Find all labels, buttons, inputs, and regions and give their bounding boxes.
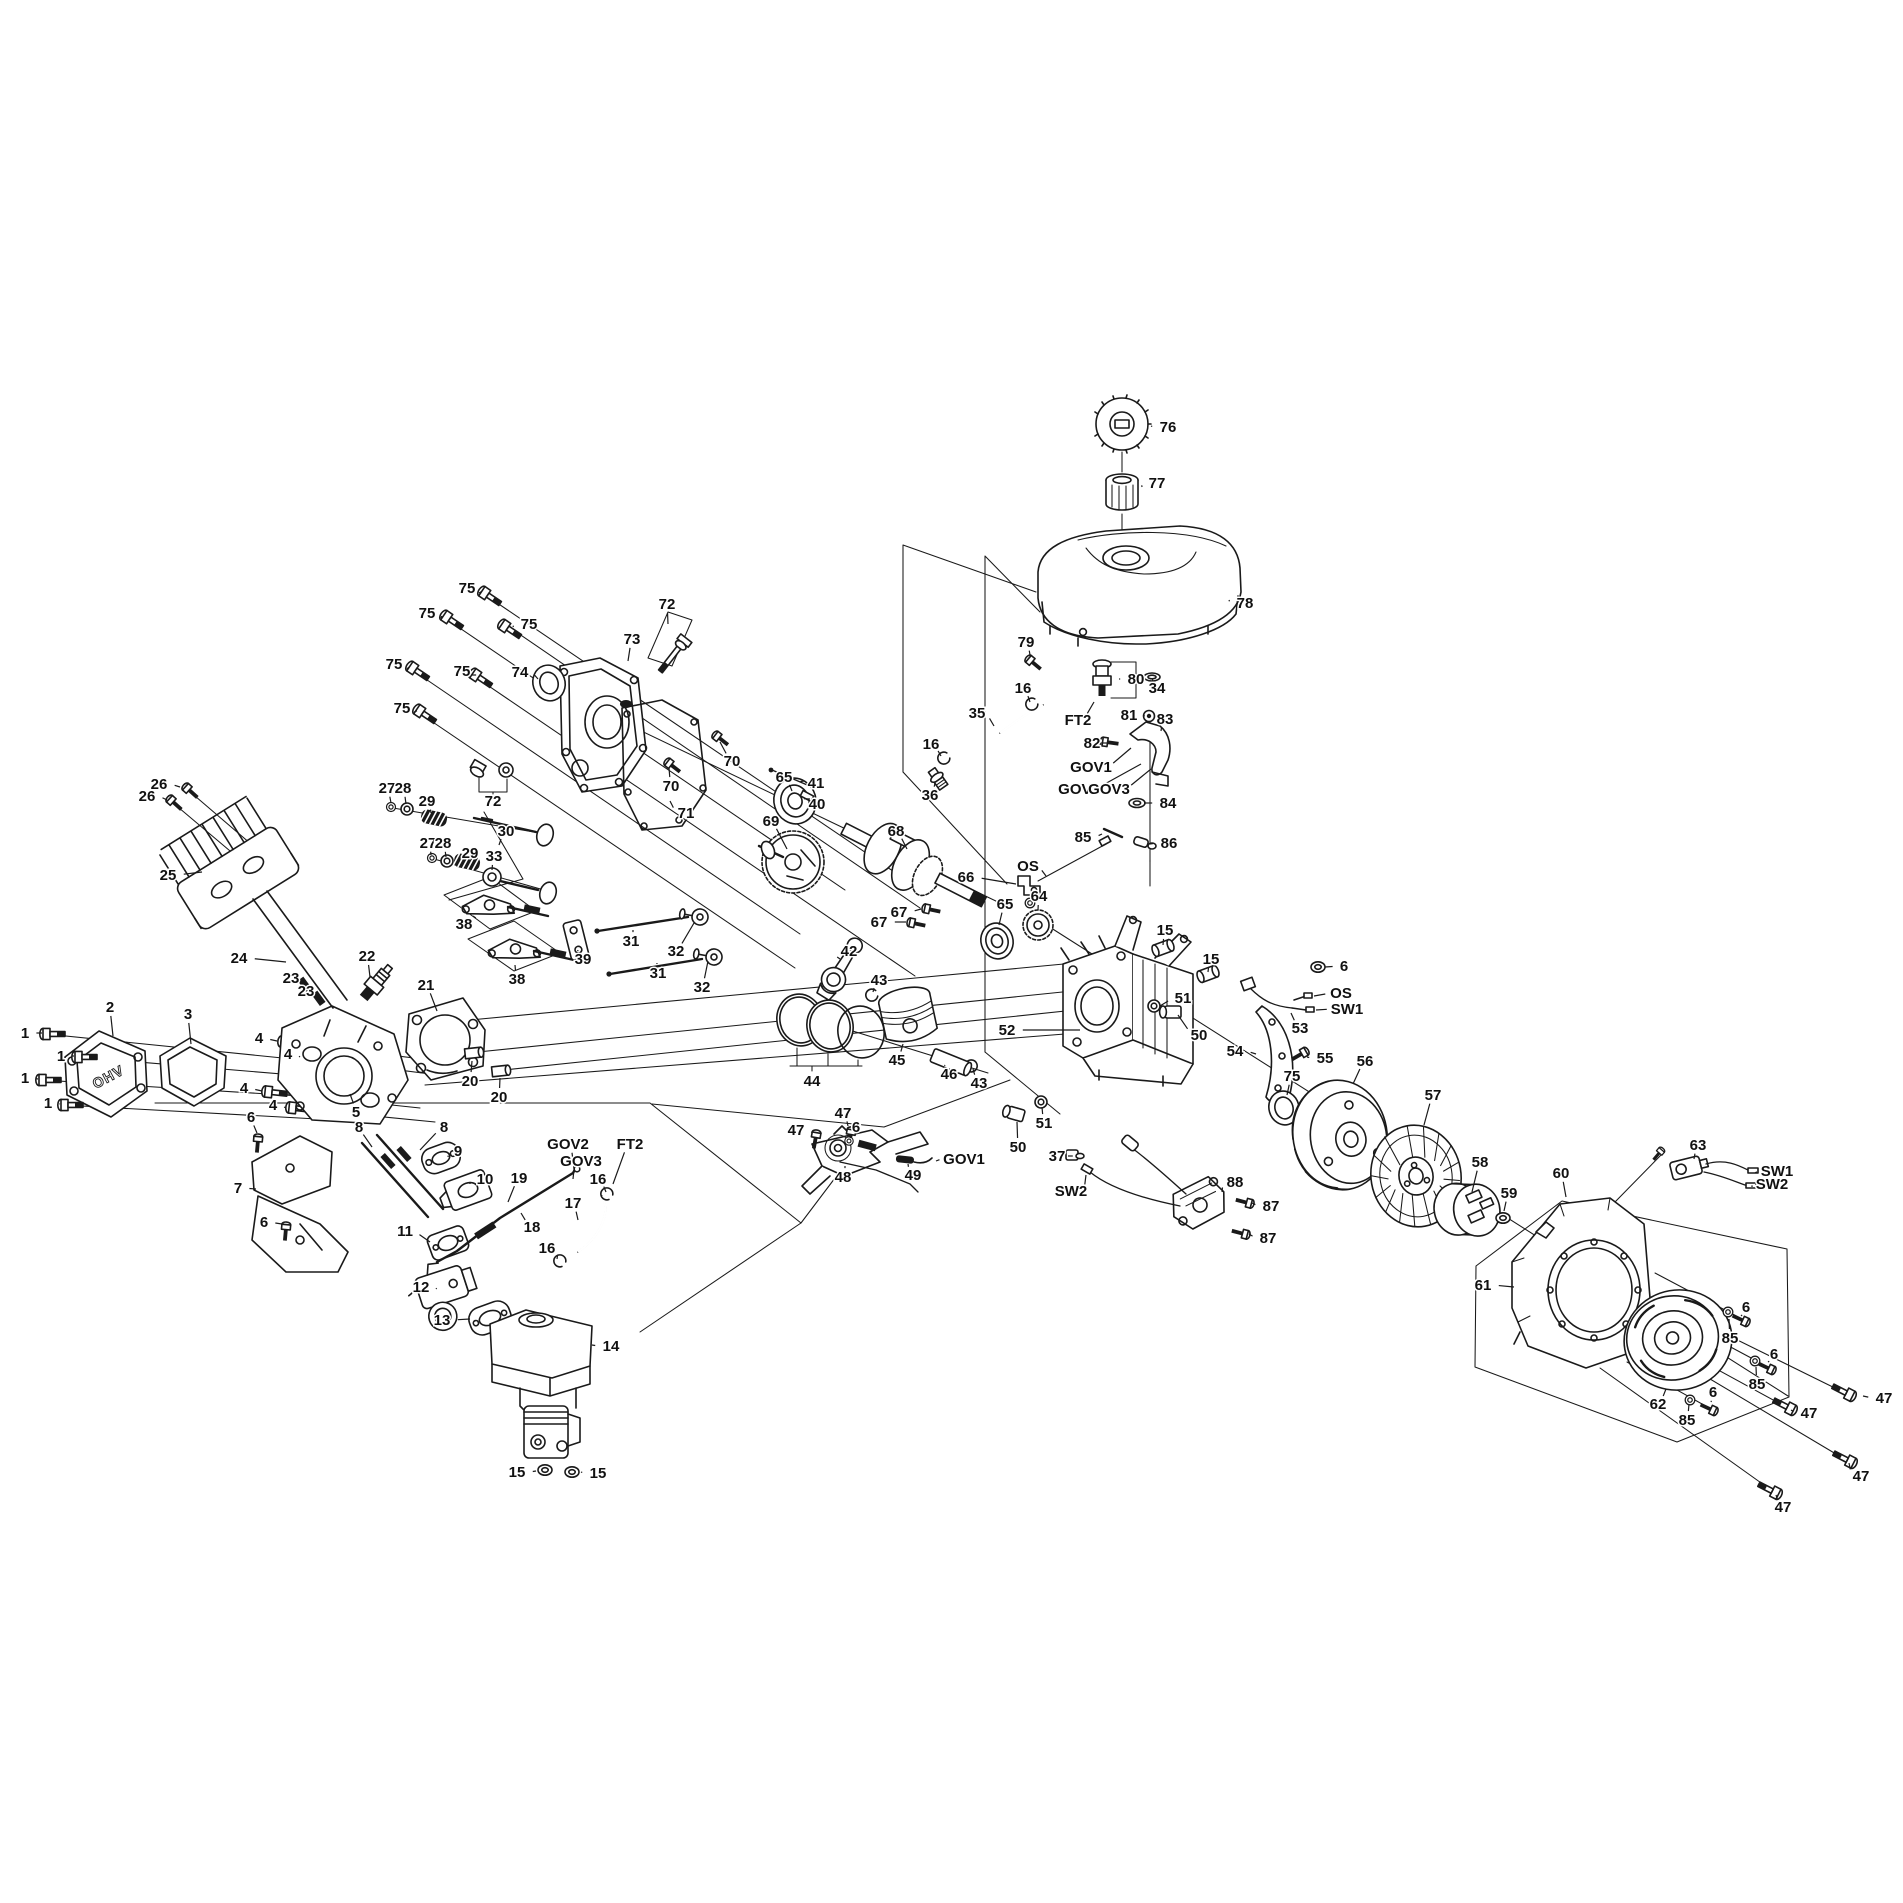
leader-line-43 <box>973 1069 975 1075</box>
leader-line-32 <box>704 961 708 978</box>
callout-27-44: 27 <box>379 780 396 797</box>
callout-85-126: 85 <box>1075 829 1092 846</box>
piston <box>877 983 939 1046</box>
callout-29-48: 29 <box>419 793 436 810</box>
callout-32-53: 32 <box>668 943 685 960</box>
oil-dipstick-72 <box>655 634 692 676</box>
callout-55-86: 55 <box>1317 1050 1334 1067</box>
callout-28-46: 28 <box>395 780 412 797</box>
callout-69-102: 69 <box>763 813 780 830</box>
callout-71-105: 71 <box>678 805 695 822</box>
callout-50-80: 50 <box>1010 1139 1027 1156</box>
engine-exploded-view: OHV <box>0 0 1903 1903</box>
leader-line-6 <box>1325 966 1333 967</box>
callout-6-132: 6 <box>1770 1346 1778 1363</box>
callout-38-61: 38 <box>509 971 526 988</box>
callout-33-55: 33 <box>486 848 503 865</box>
callout-47-74: 47 <box>1801 1405 1818 1422</box>
callout-49-78: 49 <box>905 1167 922 1184</box>
callout-80-121: 80 <box>1128 671 1145 688</box>
callout-75-115: 75 <box>394 700 411 717</box>
callout-48-77: 48 <box>835 1169 852 1186</box>
callout-9-17: 9 <box>454 1143 462 1160</box>
callout-13-21: 13 <box>434 1312 451 1329</box>
tube-clip-16 <box>1024 696 1040 712</box>
callout-75-110: 75 <box>459 580 476 597</box>
callout-47-71: 47 <box>835 1105 852 1122</box>
cylinder-block <box>1061 916 1193 1086</box>
camshaft-69 <box>759 831 824 893</box>
leader-line-4 <box>255 1089 262 1091</box>
callout-73-108: 73 <box>624 631 641 648</box>
switch-screw <box>1651 1146 1666 1162</box>
callout-6-12: 6 <box>260 1214 268 1231</box>
leader-line-15 <box>1208 968 1209 972</box>
callout-6-13: 6 <box>852 1119 860 1136</box>
governor-spring-49 <box>896 1155 932 1164</box>
callout-83-124: 83 <box>1157 711 1174 728</box>
callout-75-112: 75 <box>521 616 538 633</box>
callout-24-40: 24 <box>231 950 248 967</box>
callout-77-118: 77 <box>1149 475 1166 492</box>
callout-82-123: 82 <box>1084 735 1101 752</box>
air-cleaner-nut-15 <box>538 1465 552 1475</box>
oil-plug-72 <box>469 760 513 779</box>
callout-76-117: 76 <box>1160 419 1177 436</box>
callout-20-35: 20 <box>491 1089 508 1106</box>
plug-boot <box>1121 1134 1140 1152</box>
callout-15-23: 15 <box>509 1464 526 1481</box>
leader-line-24 <box>255 959 286 962</box>
callout-58-89: 58 <box>1472 1154 1489 1171</box>
callout-87-136: 87 <box>1260 1230 1277 1247</box>
callout-2-4: 2 <box>106 999 114 1016</box>
callout-52-83: 52 <box>999 1022 1016 1039</box>
callout-75-116: 75 <box>1284 1068 1301 1085</box>
air-cleaner-assembly <box>490 1310 592 1458</box>
callout-36-58: 36 <box>922 787 939 804</box>
callout-1-0: 1 <box>21 1025 29 1042</box>
leader-line-15 <box>533 1471 536 1472</box>
callout-6-11: 6 <box>247 1109 255 1126</box>
leader-line-42 <box>837 957 840 959</box>
kill-wire-sw2 <box>1081 1164 1180 1206</box>
callout-28-47: 28 <box>435 835 452 852</box>
leader-line-45 <box>901 1044 903 1052</box>
leader-line-66 <box>982 878 1016 884</box>
callout-68-101: 68 <box>888 823 905 840</box>
leader-line-79 <box>1029 651 1030 655</box>
callout-59-90: 59 <box>1501 1185 1518 1202</box>
callout-1-2: 1 <box>21 1070 29 1087</box>
shield-bolt-6 <box>253 1134 263 1153</box>
ignition-coil <box>1167 1174 1230 1232</box>
head-gasket <box>406 998 485 1080</box>
callout-OS-146: OS <box>1017 858 1039 875</box>
leader-line-13 <box>458 1319 470 1320</box>
fuel-tank <box>1038 526 1241 646</box>
callout-79-120: 79 <box>1018 634 1035 651</box>
callout-23-39: 23 <box>298 983 315 1000</box>
callout-6-133: 6 <box>1709 1384 1717 1401</box>
oil-filler-plug-50 <box>1160 1006 1181 1018</box>
callout-87-135: 87 <box>1263 1198 1280 1215</box>
callout-39-62: 39 <box>575 951 592 968</box>
callout-4-6: 4 <box>255 1030 264 1047</box>
callout-65-97: 65 <box>997 896 1014 913</box>
callout-75-113: 75 <box>386 656 403 673</box>
callout-29-49: 29 <box>462 845 479 862</box>
callout-67-100: 67 <box>871 914 888 931</box>
callout-15-26: 15 <box>1203 951 1220 968</box>
callout-22-37: 22 <box>359 948 376 965</box>
shroud-nut-6 <box>1311 962 1325 972</box>
leader-line-14 <box>592 1345 595 1346</box>
leader-line-OS <box>1314 994 1325 996</box>
callout-10-18: 10 <box>477 1171 494 1188</box>
callout-85-130: 85 <box>1679 1412 1696 1429</box>
crankcase-cover <box>560 658 647 792</box>
leader-line-19 <box>508 1186 514 1202</box>
leader-line-7 <box>249 1188 256 1189</box>
leader-line-OS <box>1042 870 1046 876</box>
piston-pin-clip-43 <box>864 988 879 1003</box>
callout-1-1: 1 <box>57 1048 65 1065</box>
callout-84-125: 84 <box>1160 795 1177 812</box>
callout-60-91: 60 <box>1553 1165 1570 1182</box>
leader-line-4 <box>270 1039 277 1041</box>
valve-retainer-27 <box>387 803 396 812</box>
valve-spring-29 <box>420 808 448 827</box>
callout-50-79: 50 <box>1191 1027 1208 1044</box>
leader-line-59 <box>1504 1202 1506 1211</box>
callout-16-27: 16 <box>1015 680 1032 697</box>
callout-15-25: 15 <box>1157 922 1174 939</box>
callout-GOV3-140: GOV3 <box>1088 781 1130 798</box>
governor-washer-84 <box>1129 799 1145 808</box>
leader-line-86 <box>1150 843 1153 844</box>
callout-FT2-144: FT2 <box>1065 712 1092 729</box>
leader-line-SW1 <box>1316 1009 1327 1010</box>
callout-GOV3-143: GOV3 <box>560 1153 602 1170</box>
fuel-hose-17 <box>578 1196 605 1252</box>
leader-line-55 <box>1307 1057 1309 1058</box>
fuel-cap <box>1095 395 1151 453</box>
leader-line-85 <box>1099 834 1102 836</box>
wire-harness-53 <box>1241 977 1314 1012</box>
leader-line-70 <box>669 768 670 777</box>
leader-line-60 <box>1563 1182 1566 1197</box>
callout-54-85: 54 <box>1227 1043 1244 1060</box>
leader-line-38 <box>473 916 476 918</box>
callout-12-20: 12 <box>413 1279 430 1296</box>
filler-washer-51 <box>1148 1000 1160 1012</box>
leader-line-29 <box>430 810 431 813</box>
callout-47-72: 47 <box>788 1122 805 1139</box>
callout-31-51: 31 <box>623 933 640 950</box>
heat-shield <box>252 1136 348 1272</box>
leader-line-26 <box>175 785 180 787</box>
dowel-pin <box>465 1047 485 1059</box>
callout-16-29: 16 <box>590 1171 607 1188</box>
callout-47-75: 47 <box>1853 1468 1870 1485</box>
callout-6-131: 6 <box>1742 1299 1750 1316</box>
callout-32-54: 32 <box>694 979 711 996</box>
callout-16-30: 16 <box>539 1240 556 1257</box>
callout-1-3: 1 <box>44 1095 52 1112</box>
callout-70-104: 70 <box>663 778 680 795</box>
callout-74-109: 74 <box>512 664 529 681</box>
callout-14-22: 14 <box>603 1338 620 1355</box>
leader-line-54 <box>1251 1052 1256 1054</box>
callout-41-64: 41 <box>808 775 825 792</box>
cover-bolt-1 <box>40 1028 65 1039</box>
case-bolt-67 <box>921 903 941 915</box>
callout-61-92: 61 <box>1475 1277 1492 1294</box>
leader-line-85 <box>1688 1404 1689 1411</box>
callout-31-52: 31 <box>650 965 667 982</box>
intake-valve <box>474 818 556 848</box>
leader-line-4 <box>299 1056 300 1057</box>
exploded-parts-diagram: OHV <box>0 0 1903 1903</box>
callout-47-76: 47 <box>1775 1499 1792 1516</box>
callout-4-7: 4 <box>284 1046 293 1063</box>
coil-bolt-87 <box>1235 1195 1255 1208</box>
stop-switch-63 <box>1669 1154 1709 1180</box>
flywheel-nut-59 <box>1496 1213 1510 1223</box>
callout-FT2-145: FT2 <box>617 1136 644 1153</box>
callout-88-137: 88 <box>1227 1174 1244 1191</box>
leader-line-41 <box>800 781 804 782</box>
callout-44-68: 44 <box>804 1073 821 1090</box>
cylinder-head-cover-fins <box>154 792 301 931</box>
cover-bolt-75 <box>476 585 503 608</box>
leader-line-32 <box>682 923 694 943</box>
ball-bearing-65b <box>977 919 1018 962</box>
callout-8-16: 8 <box>440 1119 448 1136</box>
callout-34-56: 34 <box>1149 680 1166 697</box>
callout-62-93: 62 <box>1650 1396 1667 1413</box>
leader-line-56 <box>1353 1069 1360 1084</box>
callout-56-87: 56 <box>1357 1053 1374 1070</box>
leader-line-GOV1 <box>936 1160 939 1161</box>
callout-43-67: 43 <box>971 1075 988 1092</box>
callout-72-107: 72 <box>485 793 502 810</box>
leader-line-62 <box>1663 1389 1666 1396</box>
leader-line-2 <box>111 1016 113 1036</box>
callout-85-129: 85 <box>1749 1376 1766 1393</box>
callout-66-98: 66 <box>958 869 975 886</box>
callout-16-28: 16 <box>923 736 940 753</box>
housing-washer-85 <box>1723 1307 1733 1317</box>
leader-line-35 <box>990 718 994 726</box>
callout-47-73: 47 <box>1876 1390 1893 1407</box>
callout-78-119: 78 <box>1237 595 1254 612</box>
callout-GOV2-142: GOV2 <box>547 1136 589 1153</box>
callout-85-128: 85 <box>1722 1330 1739 1347</box>
breather-tube-35 <box>1000 705 1043 733</box>
oil-filler-plug-50b <box>1001 1105 1025 1122</box>
tank-bolt-79 <box>1024 654 1044 673</box>
push-rod-31 <box>594 917 702 977</box>
callout-75-111: 75 <box>419 605 436 622</box>
leader-line-12 <box>436 1288 437 1289</box>
callout-6-134: 6 <box>1340 958 1348 975</box>
callout-GOV1-138: GOV1 <box>1070 759 1112 776</box>
leader-line-FT2 <box>613 1152 624 1184</box>
leader-line-6 <box>254 1125 257 1133</box>
callout-38-60: 38 <box>456 916 473 933</box>
rod-spring-19 <box>474 1221 496 1239</box>
callout-15-24: 15 <box>590 1465 607 1482</box>
gasket-bolt-70 <box>711 730 731 748</box>
leader-line-50 <box>1017 1122 1018 1138</box>
crankshaft-68 <box>831 805 997 927</box>
callout-OS-147: OS <box>1330 985 1352 1002</box>
callout-3-5: 3 <box>184 1006 192 1023</box>
side-cover-54 <box>1256 1006 1293 1103</box>
callout-4-9: 4 <box>269 1097 278 1114</box>
leader-line-83 <box>1161 728 1162 731</box>
leader-line-GOV3 <box>1131 769 1151 785</box>
callout-70-103: 70 <box>724 753 741 770</box>
callout-86-127: 86 <box>1161 835 1178 852</box>
callout-40-63: 40 <box>809 796 826 813</box>
leader-line-47 <box>1863 1396 1868 1397</box>
callout-43-66: 43 <box>871 972 888 989</box>
callout-SW1-148: SW1 <box>1331 1001 1364 1018</box>
callout-4-8: 4 <box>240 1080 249 1097</box>
valve-cover-gasket <box>160 1038 226 1106</box>
leader-line-28 <box>445 852 446 857</box>
callout-19-33: 19 <box>511 1170 528 1187</box>
leader-line-17 <box>576 1212 578 1220</box>
leader-line-75 <box>441 616 442 618</box>
leader-line-47 <box>847 1121 848 1126</box>
callout-75-114: 75 <box>454 663 471 680</box>
leader-line-67 <box>915 909 921 911</box>
callout-46-70: 46 <box>941 1066 958 1083</box>
callout-11-19: 11 <box>397 1223 413 1240</box>
governor-shaft-86 <box>1133 836 1149 848</box>
callout-53-84: 53 <box>1292 1020 1309 1037</box>
callout-GOV1-141: GOV1 <box>943 1151 985 1168</box>
fuel-filter-77 <box>1106 474 1138 510</box>
switch-wires <box>1704 1162 1758 1188</box>
leader-line-16 <box>557 1255 558 1259</box>
callout-21-36: 21 <box>418 977 435 994</box>
callout-7-14: 7 <box>234 1180 242 1197</box>
callout-26-43: 26 <box>139 788 156 805</box>
callout-51-82: 51 <box>1036 1115 1053 1132</box>
spark-plug <box>357 961 396 1003</box>
callout-SW2-151: SW2 <box>1756 1176 1789 1193</box>
callout-51-81: 51 <box>1175 990 1192 1007</box>
callout-81-122: 81 <box>1121 707 1138 724</box>
leader-line-57 <box>1424 1104 1430 1125</box>
callout-72-106: 72 <box>659 596 676 613</box>
callout-17-31: 17 <box>565 1195 582 1212</box>
leader-line-15 <box>1163 939 1164 945</box>
cover-bolt-55 <box>1290 1046 1311 1063</box>
spark-plug-wire <box>1132 1148 1186 1194</box>
callout-37-59: 37 <box>1049 1148 1066 1165</box>
mount-bolt-47 <box>1830 1381 1858 1402</box>
leader-line-GOV1 <box>1113 748 1131 763</box>
callout-20-34: 20 <box>462 1073 479 1090</box>
callout-30-50: 30 <box>498 823 515 840</box>
leader-line-22 <box>369 965 370 977</box>
oil-drain-plug-37 <box>1066 1150 1084 1160</box>
valve-rotator-33 <box>483 868 501 886</box>
callout-63-94: 63 <box>1690 1137 1707 1154</box>
callout-SW2-149: SW2 <box>1055 1183 1088 1200</box>
callout-45-69: 45 <box>889 1052 906 1069</box>
leader-line-71 <box>670 801 673 808</box>
callout-42-65: 42 <box>841 943 858 960</box>
valve-retainer-28 <box>401 803 413 815</box>
callout-25-41: 25 <box>160 867 177 884</box>
callout-18-32: 18 <box>524 1219 541 1236</box>
callout-35-57: 35 <box>969 705 986 722</box>
callout-8-15: 8 <box>355 1119 363 1136</box>
callout-57-88: 57 <box>1425 1087 1442 1104</box>
leader-line-51 <box>1042 1107 1043 1114</box>
callout-67-99: 67 <box>891 904 908 921</box>
callout-65-96: 65 <box>776 769 793 786</box>
leader-line-73 <box>628 648 630 661</box>
callout-64-95: 64 <box>1031 888 1048 905</box>
